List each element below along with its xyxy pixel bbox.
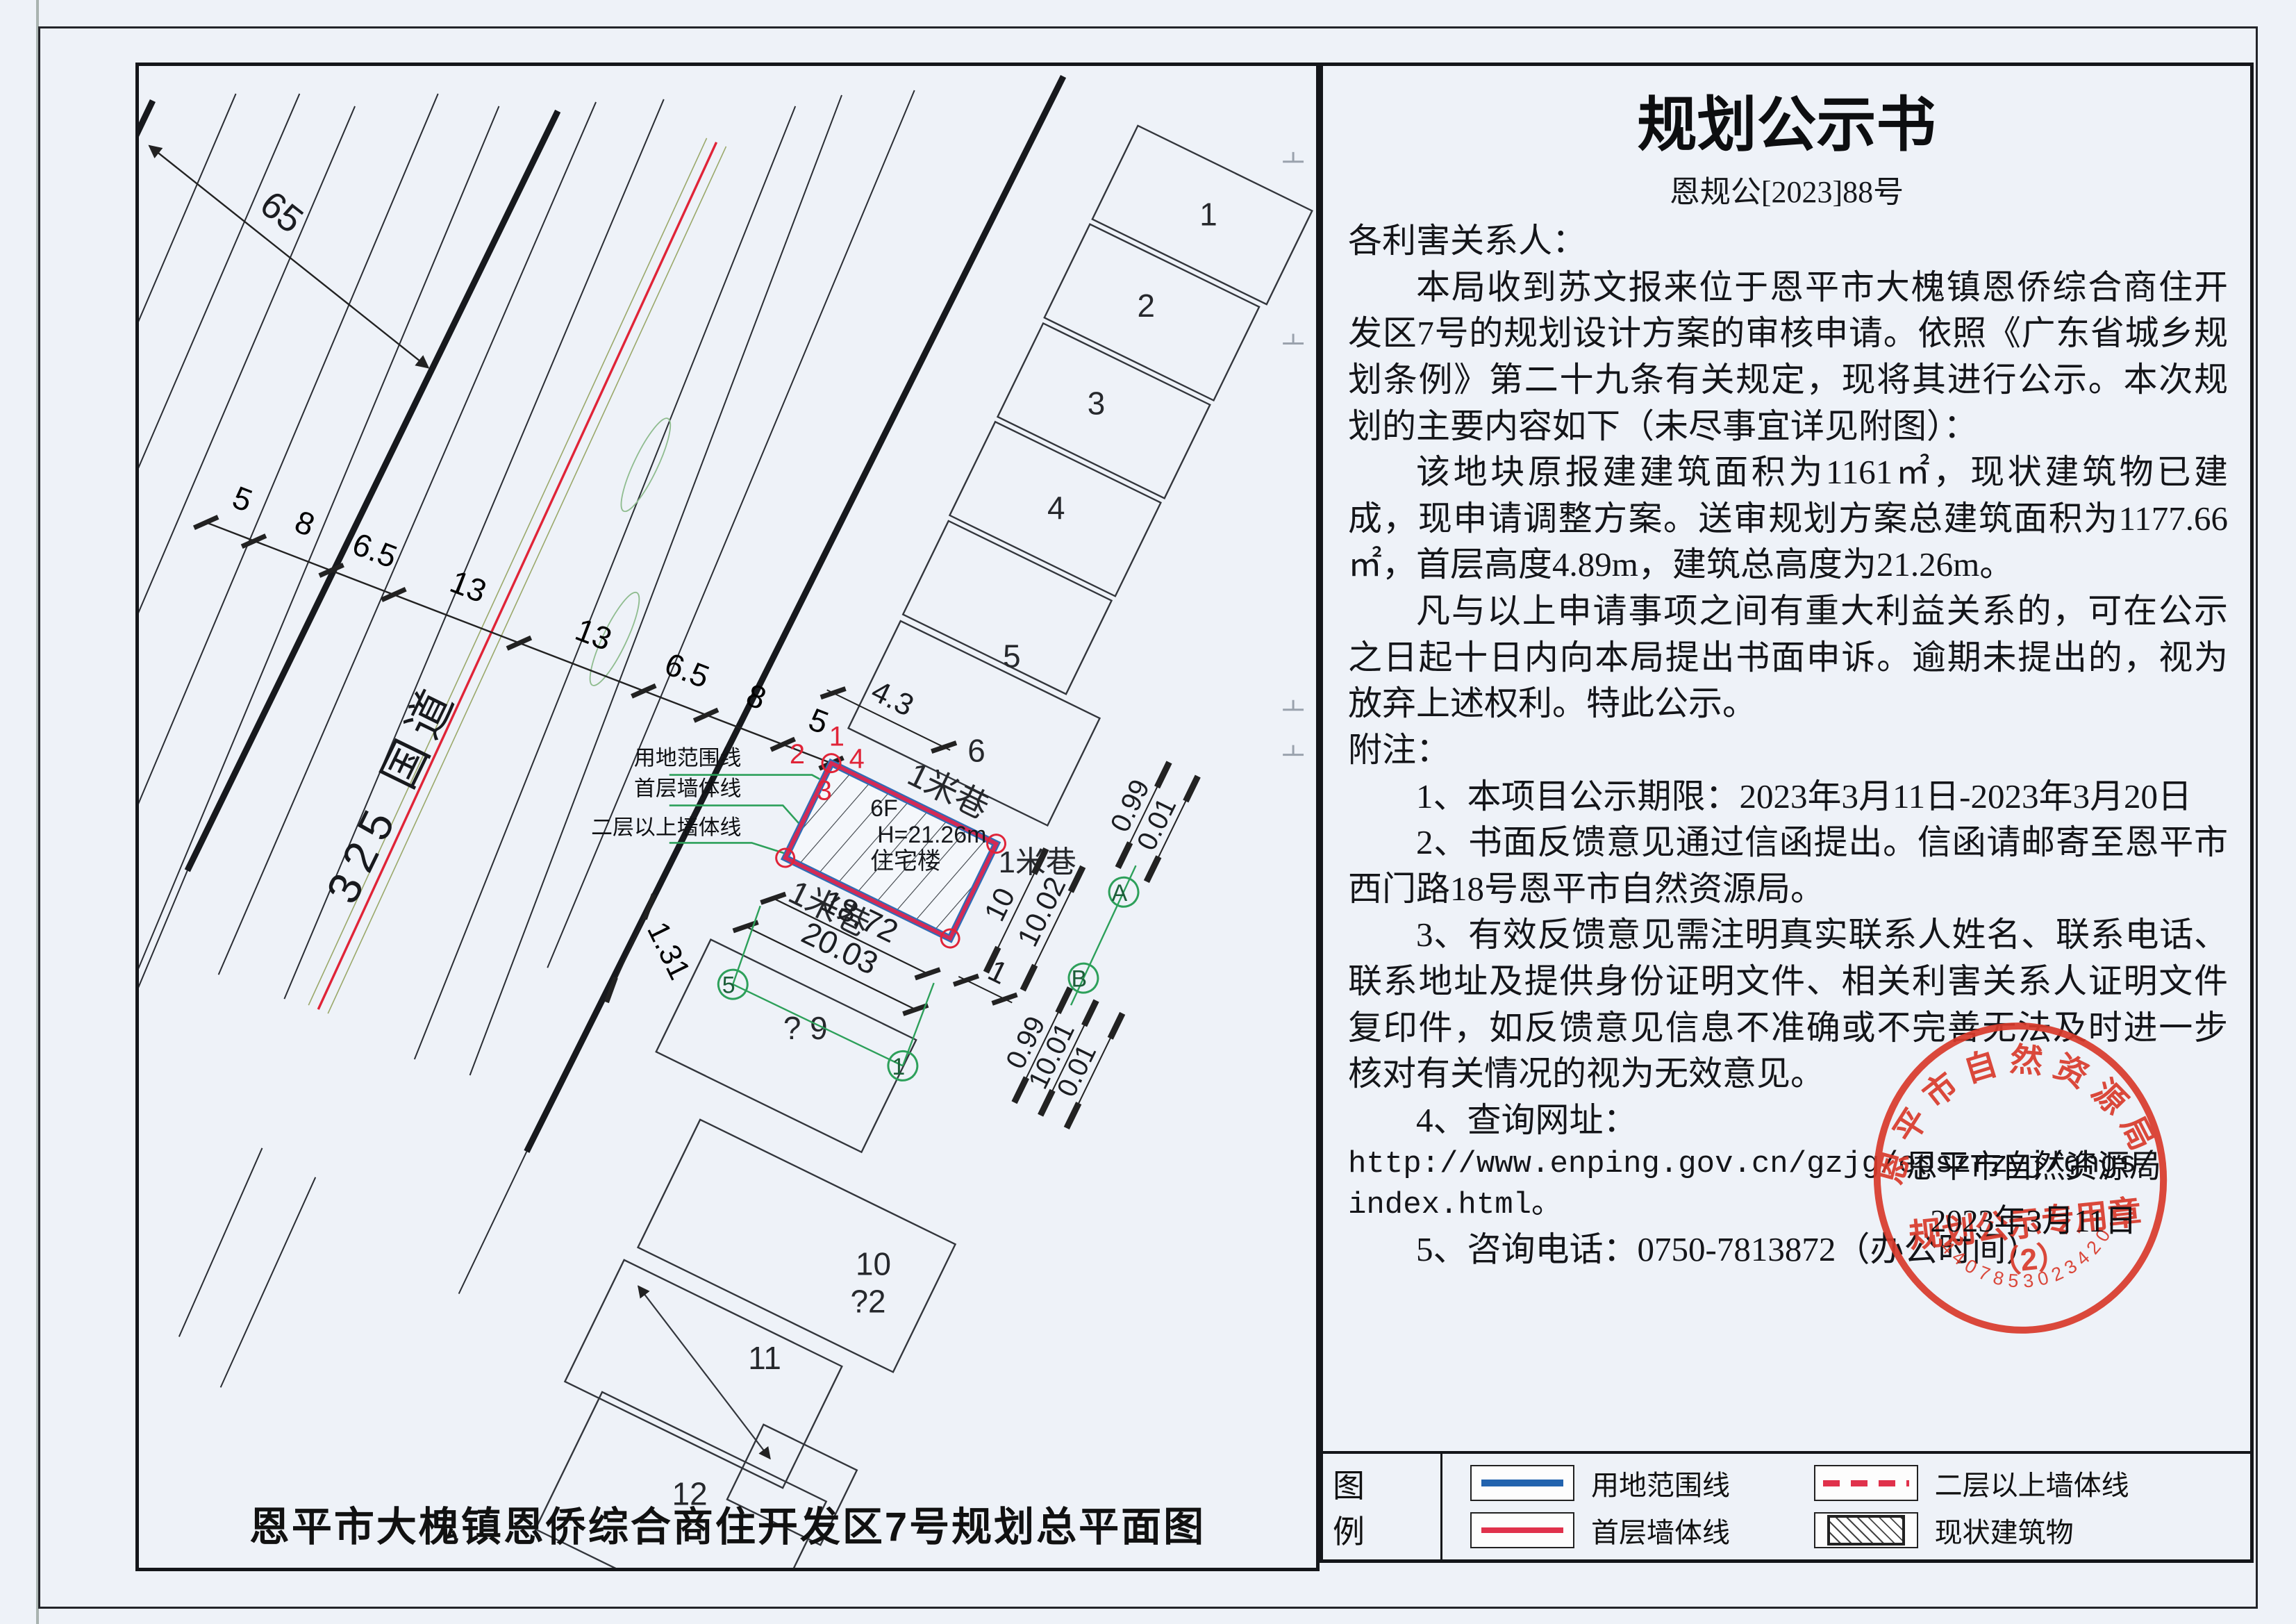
dim-10-label: 10: [978, 883, 1022, 927]
dim-chain: 5 8 6.5 13 13 6.5 8 5: [193, 479, 845, 770]
survey-point-label: A: [1112, 880, 1128, 906]
upper-wall-swatch-icon: [1814, 1465, 1918, 1501]
salutation: 各利害关系人：: [1348, 218, 2228, 265]
parcel-number: 1: [1199, 196, 1217, 232]
survey-cross-marks: [1283, 152, 1304, 755]
legend-title: 图 例: [1323, 1454, 1442, 1559]
chain-dim-label: 6.5: [348, 525, 402, 574]
legend-item-label: 用地范围线: [1591, 1463, 1730, 1503]
dim-1-31-label: 1.31: [640, 917, 697, 985]
first-wall-swatch-icon: [1470, 1512, 1574, 1548]
signature-block: 恩平市自然资源局 2023年3月11日: [1906, 1141, 2161, 1241]
survey-point-label: B: [1072, 966, 1088, 993]
paragraph: 本局收到苏文报来位于恩平市大槐镇恩侨综合商住开发区7号的规划设计方案的审核申请。…: [1348, 265, 2228, 450]
notice-panel: 规划公示书 恩规公[2023]88号 各利害关系人： 本局收到苏文报来位于恩平市…: [1320, 63, 2254, 1563]
parcel-number: 4: [1047, 490, 1065, 526]
corner-label: 3: [817, 775, 832, 806]
notice-title: 规划公示书: [1323, 76, 2250, 163]
building-height: H=21.26m: [877, 822, 986, 848]
chain-dim-label: 5: [228, 479, 257, 519]
notice-doc-number: 恩规公[2023]88号: [1323, 167, 2250, 211]
building-use: 住宅楼: [870, 848, 941, 875]
parcel-number: 10: [856, 1246, 891, 1282]
survey-point-label: 1: [892, 1054, 905, 1080]
legend-item-label: 首层墙体线: [1591, 1510, 1730, 1550]
dim-65-label: 65: [252, 183, 310, 241]
parcel-number: 5: [1003, 638, 1021, 674]
scanned-planning-notice: 325 国道 65 5 8 6.5 13: [0, 0, 2296, 1624]
note-item: 2、书面反馈意见通过信函提出。信函请邮寄至恩平市西门路18号恩平市自然资源局。: [1348, 820, 2228, 912]
paragraph: 凡与以上申请事项之间有重大利益关系的，可在公示之日起十日内向本局提出书面申诉。逾…: [1348, 588, 2228, 727]
legend-item-existing-building: 现状建筑物: [1814, 1507, 2243, 1554]
parcel-number: 3: [1088, 386, 1106, 422]
legend-item-label: 二层以上墙体线: [1935, 1463, 2129, 1503]
legend-items: 用地范围线 二层以上墙体线 首层墙体线 现状建筑物: [1442, 1454, 2250, 1559]
legend-box: 图 例 用地范围线 二层以上墙体线 首层墙体线 现状建筑物: [1323, 1451, 2250, 1559]
dim-4-3-label: 4.3: [866, 674, 919, 723]
signature-date: 2023年3月11日: [1906, 1195, 2161, 1241]
bold-boundary-lines: [139, 76, 1063, 1152]
site-plan-drawing: 325 国道 65 5 8 6.5 13: [139, 66, 1316, 1568]
site-plan-caption: 恩平市大槐镇恩侨综合商住开发区7号规划总平面图: [139, 1494, 1316, 1552]
parcel-number: 2: [1138, 288, 1156, 324]
legend-item-site-boundary: 用地范围线: [1470, 1459, 1814, 1507]
callout-first-floor-wall: 首层墙体线: [634, 777, 742, 801]
notice-text-area: 规划公示书 恩规公[2023]88号 各利害关系人： 本局收到苏文报来位于恩平市…: [1323, 66, 2250, 1454]
legend-item-label: 现状建筑物: [1935, 1510, 2074, 1550]
parcel-number: ?2: [850, 1284, 885, 1320]
parcel-number: 11: [748, 1340, 781, 1376]
corner-label: 2: [790, 739, 805, 770]
corner-label: 4: [849, 743, 865, 774]
legend-item-first-wall: 首层墙体线: [1470, 1507, 1814, 1554]
callout-upper-floor-wall: 二层以上墙体线: [591, 815, 741, 839]
callout-boundary-line: 用地范围线: [634, 746, 742, 770]
corner-label: 1: [829, 721, 845, 752]
dim-65: 65: [149, 146, 429, 368]
parcel-number: 6: [967, 733, 985, 769]
road-centerline: [318, 142, 716, 1009]
note-item: 1、本项目公示期限：2023年3月11日-2023年3月20日: [1348, 774, 2228, 820]
paragraph: 该地块原报建建筑面积为1161㎡，现状建筑物已建成，现申请调整方案。送审规划方案…: [1348, 449, 2228, 588]
parcel-number: ? 9: [783, 1010, 828, 1046]
site-boundary-swatch-icon: [1470, 1465, 1574, 1501]
site-plan-panel: 325 国道 65 5 8 6.5 13: [135, 63, 1320, 1571]
signature-agency: 恩平市自然资源局: [1906, 1141, 2161, 1187]
survey-point-label: 5: [722, 972, 735, 999]
chain-dim-label: 8: [290, 503, 319, 543]
existing-building-swatch-icon: [1814, 1512, 1918, 1548]
building-floors: 6F: [870, 795, 898, 822]
notes-label: 附注：: [1348, 727, 2228, 774]
chain-dim-label: 8: [742, 677, 771, 717]
chain-dim-label: 6.5: [660, 645, 714, 695]
dim-1: 1: [951, 941, 1031, 1014]
legend-item-upper-wall: 二层以上墙体线: [1814, 1459, 2243, 1507]
dim-10-02-label: 10.02: [1010, 872, 1072, 952]
